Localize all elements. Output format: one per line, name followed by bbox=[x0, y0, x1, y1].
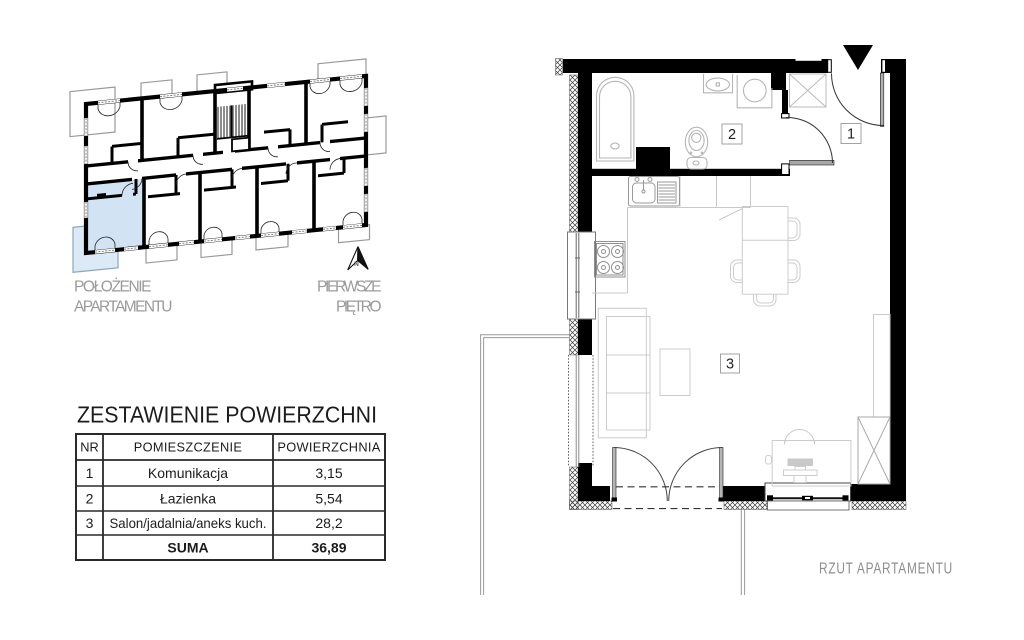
svg-text:3,15: 3,15 bbox=[315, 465, 342, 481]
svg-text:5,54: 5,54 bbox=[315, 491, 342, 507]
svg-text:ZESTAWIENIE POWIERZCHNI: ZESTAWIENIE POWIERZCHNI bbox=[77, 402, 377, 428]
svg-text:SUMA: SUMA bbox=[167, 540, 208, 556]
svg-text:APARTAMENTU: APARTAMENTU bbox=[74, 299, 173, 316]
svg-text:Salon/jadalnia/aneks kuch.: Salon/jadalnia/aneks kuch. bbox=[110, 515, 267, 531]
svg-text:36,89: 36,89 bbox=[311, 540, 346, 556]
svg-text:2: 2 bbox=[728, 127, 736, 143]
svg-text:NR: NR bbox=[80, 440, 98, 455]
svg-text:Komunikacja: Komunikacja bbox=[148, 465, 228, 481]
svg-text:RZUT APARTAMENTU: RZUT APARTAMENTU bbox=[819, 561, 953, 578]
svg-text:1: 1 bbox=[847, 127, 855, 143]
svg-text:28,2: 28,2 bbox=[315, 515, 342, 531]
svg-text:3: 3 bbox=[86, 515, 94, 531]
svg-text:3: 3 bbox=[726, 357, 734, 373]
svg-text:2: 2 bbox=[86, 491, 94, 507]
svg-text:Łazienka: Łazienka bbox=[160, 491, 216, 507]
svg-text:POMIESZCZENIE: POMIESZCZENIE bbox=[134, 440, 242, 455]
svg-text:POŁOŻENIE: POŁOŻENIE bbox=[74, 278, 152, 296]
svg-text:1: 1 bbox=[86, 465, 94, 481]
svg-text:N: N bbox=[354, 261, 359, 268]
svg-text:PIĘTRO: PIĘTRO bbox=[336, 299, 382, 316]
svg-text:PIERWSZE: PIERWSZE bbox=[317, 279, 382, 296]
svg-text:POWIERZCHNIA: POWIERZCHNIA bbox=[277, 440, 380, 455]
